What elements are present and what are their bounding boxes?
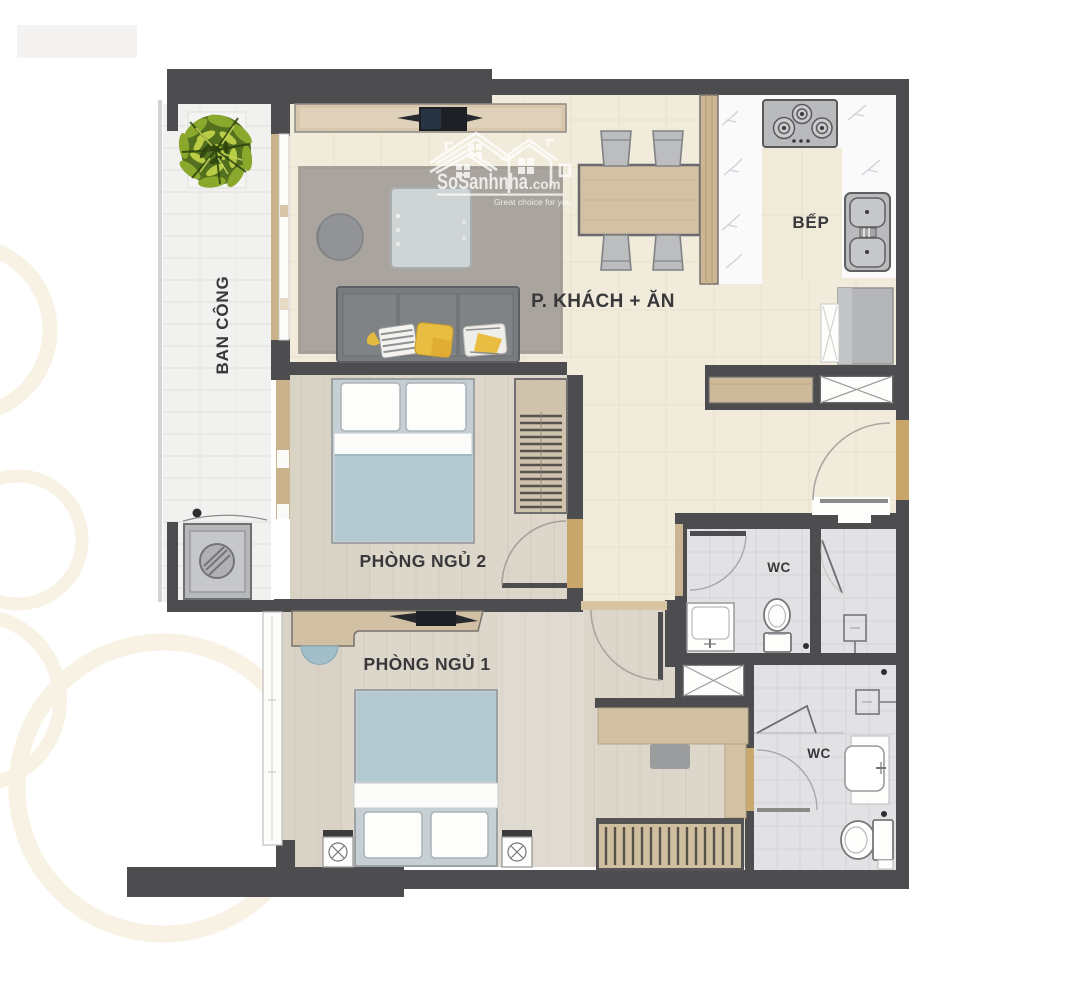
svg-text:SoSanhnha: SoSanhnha (437, 169, 528, 194)
svg-text:P. KHÁCH + ĂN: P. KHÁCH + ĂN (531, 290, 675, 312)
svg-text:PHÒNG NGỦ 2: PHÒNG NGỦ 2 (360, 550, 487, 571)
svg-text:BẾP: BẾP (792, 213, 829, 232)
svg-text:WC: WC (767, 560, 791, 575)
svg-text:Great choice for you: Great choice for you (494, 197, 572, 207)
svg-text:WC: WC (807, 746, 831, 761)
svg-text:BAN CÔNG: BAN CÔNG (213, 276, 232, 375)
svg-text:.com: .com (529, 177, 561, 192)
svg-text:PHÒNG NGỦ 1: PHÒNG NGỦ 1 (364, 653, 491, 674)
